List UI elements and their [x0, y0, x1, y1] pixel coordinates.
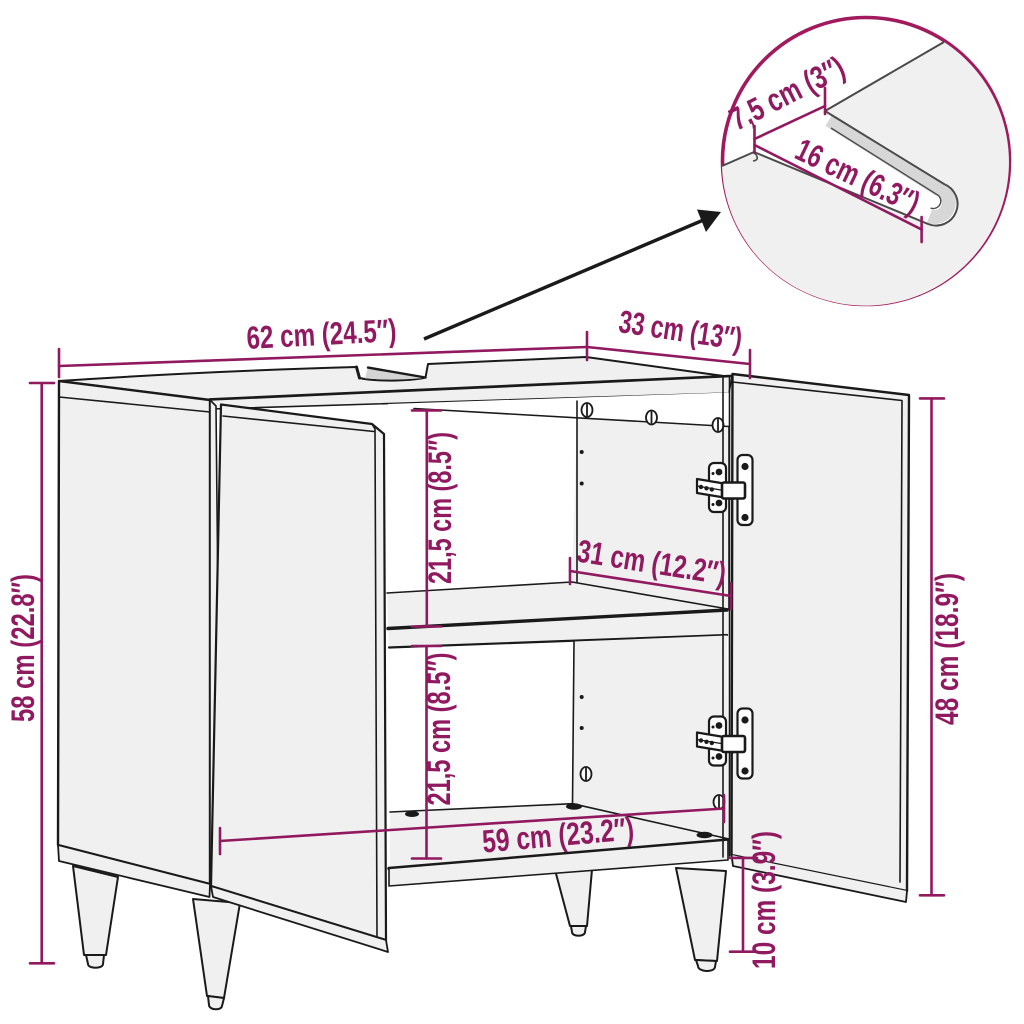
svg-text:48 cm (18.9″): 48 cm (18.9″) — [929, 573, 965, 725]
svg-text:21,5 cm (8.5″): 21,5 cm (8.5″) — [421, 653, 457, 806]
svg-text:10 cm (3.9″): 10 cm (3.9″) — [746, 831, 782, 969]
svg-text:21,5 cm (8.5″): 21,5 cm (8.5″) — [422, 432, 458, 584]
svg-text:58 cm (22.8″): 58 cm (22.8″) — [5, 574, 41, 722]
